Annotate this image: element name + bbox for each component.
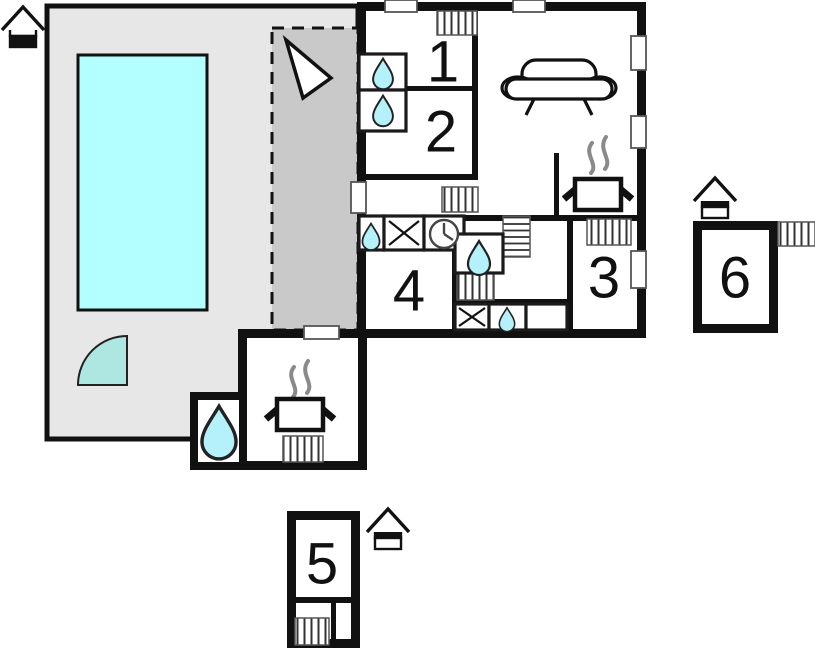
radiator-icon: [442, 187, 478, 212]
window-opening: [631, 36, 646, 70]
room-label-5: 5: [306, 532, 338, 597]
radiator-icon: [295, 618, 329, 645]
radiator-icon: [778, 222, 815, 246]
floor-plan-page: 1 2 3 4 5 6: [0, 0, 815, 652]
room-label-4: 4: [393, 259, 425, 324]
window-opening: [351, 182, 366, 213]
door-opening: [385, 0, 417, 12]
house-icon: [2, 7, 44, 47]
room-label-2: 2: [425, 100, 457, 165]
room-label-6: 6: [719, 246, 751, 311]
clock-icon: [430, 220, 458, 248]
room-label-3: 3: [588, 246, 620, 311]
radiator-icon: [283, 436, 323, 462]
stove-icon: [564, 179, 632, 210]
house-icon: [694, 178, 736, 218]
pool-icon: [78, 55, 207, 310]
window-opening: [631, 116, 646, 148]
room-label-1: 1: [427, 30, 459, 95]
window-opening: [631, 251, 646, 288]
door-opening: [513, 0, 545, 12]
annex-door-opening: [304, 326, 339, 339]
stairs-icon: [503, 216, 530, 257]
room-6-building: [693, 178, 815, 333]
house-icon: [367, 509, 409, 549]
empty-box: [526, 304, 567, 330]
stove-icon: [266, 399, 334, 430]
floor-plan-canvas: 1 2 3 4 5 6: [0, 0, 815, 652]
radiator-icon: [457, 272, 494, 300]
radiator-icon: [587, 219, 631, 245]
